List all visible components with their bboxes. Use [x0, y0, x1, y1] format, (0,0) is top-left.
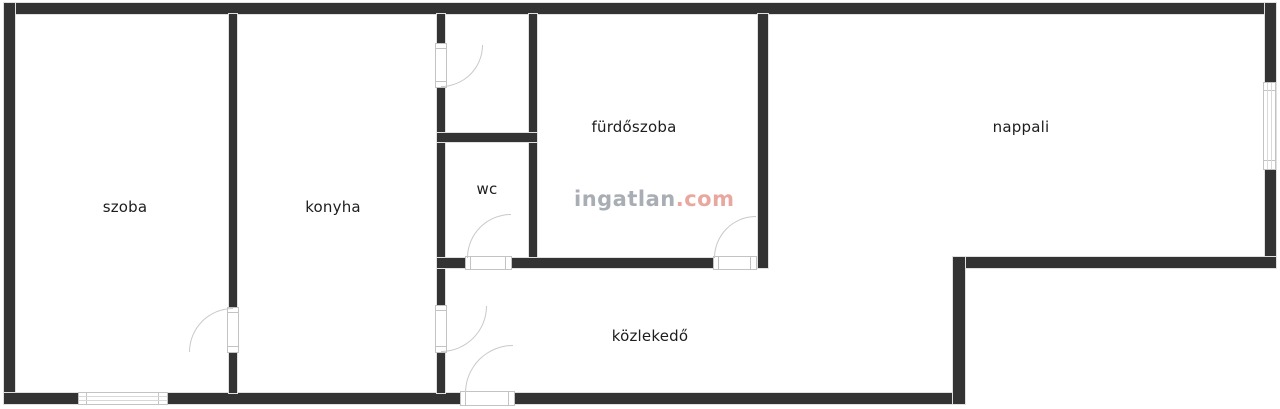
wall-storage-wc-divider — [437, 133, 537, 142]
wall-nappali-bottom — [953, 257, 1276, 268]
storage-door-swing-arc — [441, 45, 483, 87]
room-label-nappali: nappali — [993, 118, 1050, 136]
szoba-window — [78, 392, 168, 405]
bathroom-door-swing-arc — [714, 216, 756, 258]
wall-outer-top — [4, 3, 1276, 14]
wc-door-swing-arc — [467, 214, 511, 258]
konyha-hall-door-swing-arc — [441, 306, 487, 352]
room-label-kozlekedo: közlekedő — [612, 327, 688, 345]
watermark: ingatlan.com — [574, 187, 734, 211]
szoba-door-swing-arc — [189, 308, 233, 352]
wall-bath-nappali — [758, 14, 768, 268]
bathroom-door-panel — [713, 256, 757, 270]
watermark-suffix-text: .com — [676, 187, 735, 211]
room-label-konyha: konyha — [305, 198, 361, 216]
wall-step-right — [953, 257, 965, 404]
room-label-furdoszoba: fürdőszoba — [592, 118, 677, 136]
watermark-brand-text: ingatlan — [574, 187, 676, 211]
room-label-wc: wc — [477, 180, 498, 198]
floorplan: ingatlan.com szobakonyhawcfürdőszobanapp… — [0, 0, 1280, 409]
entry-door-swing-arc — [465, 345, 513, 393]
entry-door-panel — [460, 391, 515, 406]
nappali-window — [1263, 82, 1276, 170]
wall-outer-left — [4, 3, 15, 404]
room-label-szoba: szoba — [103, 198, 148, 216]
wc-door-panel — [465, 256, 512, 270]
